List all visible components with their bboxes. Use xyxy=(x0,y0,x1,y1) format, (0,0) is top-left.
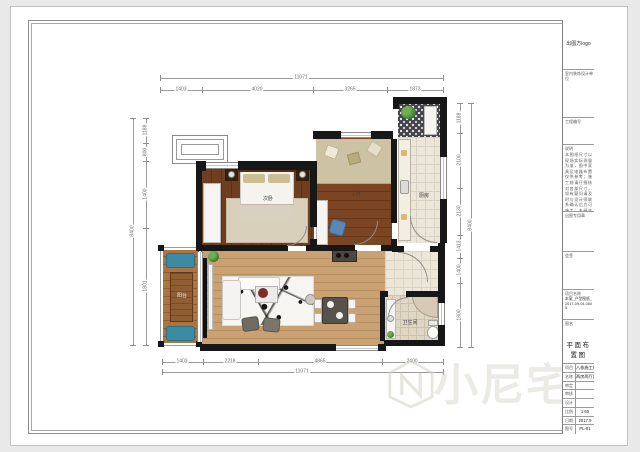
dim-label: 1413 xyxy=(458,239,463,252)
dim-label: 4865 xyxy=(313,360,326,365)
dim-label: 2400 xyxy=(405,360,418,365)
drawing-name-value: 平面布置图 xyxy=(563,339,594,359)
hob-symbol xyxy=(336,253,341,258)
chair-symbol xyxy=(348,313,356,323)
lamp-symbol xyxy=(299,171,306,178)
wall-segment xyxy=(393,97,399,109)
title-block-drawing-name: 图名 平面布置图 xyxy=(563,320,594,364)
wall-segment xyxy=(380,291,388,297)
design-unit-text: 室内装饰设计单位 xyxy=(563,70,594,81)
balcony-door-symbol xyxy=(197,252,203,342)
wardrobe-symbol xyxy=(203,183,221,243)
wall-segment xyxy=(313,131,341,139)
wall-segment xyxy=(430,246,440,252)
project-no-label: 工程编号 xyxy=(563,118,594,124)
armchair-symbol xyxy=(262,317,280,333)
drawing-canvas: 次卧 主卧 厨房 xyxy=(0,0,640,452)
notes-text: 本图纸尺寸以现场实际测量为准，图中家具及电器布置仅供参考；施工前请仔细核对各部尺… xyxy=(563,151,594,212)
dim-label: 11071 xyxy=(294,370,310,375)
washer-symbol xyxy=(424,106,437,135)
table-row: 项目八栋施工图 xyxy=(563,364,594,373)
dim-line xyxy=(162,362,443,363)
wall-segment xyxy=(381,245,392,251)
title-block-notes: 说明 本图纸尺寸以现场实际测量为准，图中家具及电器布置仅供参考；施工前请仔细核对… xyxy=(563,145,594,212)
blanket-symbol xyxy=(240,204,294,222)
wall-segment xyxy=(392,246,404,252)
wall-segment xyxy=(380,295,385,341)
label-bathroom: 卫生间 xyxy=(402,320,417,326)
logo-placeholder: 出图方logo xyxy=(563,40,594,47)
dim-label: 1801 xyxy=(144,279,149,292)
pillow-symbol xyxy=(243,174,265,183)
bay-window xyxy=(172,135,228,164)
sink-symbol xyxy=(400,180,409,194)
wall-segment xyxy=(391,139,397,223)
wall-segment xyxy=(310,161,317,227)
window-symbol xyxy=(438,303,445,325)
table-row: 日期2017.9 xyxy=(563,417,594,426)
sign-label: 会签 xyxy=(563,252,594,258)
window-symbol xyxy=(336,345,380,351)
chair-symbol xyxy=(314,313,322,323)
label-kitchen: 厨房 xyxy=(419,193,429,199)
seal-label: 出图专用章 xyxy=(563,212,594,218)
dim-label: 1403 xyxy=(174,88,187,93)
lounge-chair-symbol xyxy=(166,253,195,268)
wall-segment xyxy=(196,192,202,247)
table-row: 审定 xyxy=(563,382,594,391)
table-row: 名称两房两厅(平面) xyxy=(563,373,594,382)
title-block-table: 项目八栋施工图 名称两房两厅(平面) 审定 审核 设计 比例1:60 日期201… xyxy=(563,364,594,434)
title-block-seal: 出图专用章 xyxy=(563,212,594,252)
bathroom-threshold xyxy=(384,340,442,346)
project-name-value: 本案_户型图纸_2017-09-04-0805 xyxy=(563,296,594,311)
table-row: 图号PL-01 xyxy=(563,425,594,434)
wall-segment xyxy=(393,97,446,104)
dim-label: 1800 xyxy=(458,308,463,321)
title-block-logo: 出图方logo xyxy=(563,20,594,70)
table-row: 设计 xyxy=(563,399,594,408)
window-symbol xyxy=(440,157,447,199)
plant-symbol xyxy=(401,106,416,119)
lamp-symbol xyxy=(228,171,235,178)
dim-label: 800 xyxy=(144,147,149,157)
title-block-project-name: 项目名称 本案_户型图纸_2017-09-04-0805 xyxy=(563,290,594,320)
dim-label: 2100 xyxy=(458,153,463,166)
plate-symbol xyxy=(336,312,343,319)
table-row: 审核 xyxy=(563,390,594,399)
table-row: 比例1:60 xyxy=(563,408,594,417)
title-block-sign: 会签 xyxy=(563,252,594,290)
wall-segment xyxy=(196,245,288,251)
watermark-cube-logo-icon xyxy=(388,359,434,414)
wall-segment xyxy=(378,344,386,351)
dim-label: 4020 xyxy=(250,88,263,93)
label-secondary-bedroom: 次卧 xyxy=(263,196,273,202)
dim-label: 3265 xyxy=(343,88,356,93)
chair-symbol xyxy=(348,299,356,309)
armchair-symbol xyxy=(241,316,260,332)
wall-segment xyxy=(196,161,206,171)
hob-symbol xyxy=(344,253,349,258)
wall-segment xyxy=(371,131,393,139)
dim-label: 1188 xyxy=(144,124,149,137)
wall-segment xyxy=(440,199,447,243)
floor-plan: 次卧 主卧 厨房 xyxy=(0,0,640,452)
chair-symbol xyxy=(314,299,322,309)
title-block-project-no: 工程编号 xyxy=(563,118,594,145)
plant-symbol xyxy=(387,331,394,338)
dim-label: 8400 xyxy=(469,218,474,231)
dim-label: 11071 xyxy=(293,76,309,81)
window-symbol xyxy=(206,162,238,169)
label-balcony: 阳台 xyxy=(177,293,187,299)
cabinet-symbol xyxy=(316,200,328,245)
tray-symbol xyxy=(258,288,268,298)
dining-table-symbol xyxy=(322,297,348,324)
dim-label: 2130 xyxy=(458,204,463,217)
dim-label: 1873 xyxy=(408,88,421,93)
wall-segment xyxy=(313,245,355,251)
title-block-design-unit: 室内装饰设计单位 xyxy=(563,70,594,118)
wall-segment xyxy=(438,325,445,346)
dim-label: 2218 xyxy=(223,360,236,365)
plant-symbol xyxy=(208,251,219,262)
drawing-name-label: 图名 xyxy=(563,320,594,326)
wall-segment xyxy=(200,344,336,351)
label-master-bedroom: 主卧 xyxy=(351,191,361,197)
watermark-text: 小尼宅配 xyxy=(434,356,562,416)
tv-console-symbol xyxy=(208,264,213,330)
dim-label: 8400 xyxy=(131,224,136,237)
counter-item xyxy=(401,214,407,220)
plate-symbol xyxy=(327,301,334,308)
dim-label: 1403 xyxy=(175,360,188,365)
counter-item xyxy=(401,150,407,156)
wall-segment xyxy=(440,97,447,157)
lounge-chair-symbol xyxy=(166,326,195,341)
title-block: 出图方logo 室内装饰设计单位 工程编号 说明 本图纸尺寸以现场实际测量为准，… xyxy=(562,20,594,434)
dim-label: 1188 xyxy=(458,112,463,125)
window-symbol xyxy=(341,132,371,138)
chaise-symbol xyxy=(222,280,241,320)
wall-segment xyxy=(238,161,316,170)
wall-segment xyxy=(406,291,442,297)
dim-label: 1400 xyxy=(458,263,463,276)
dim-label: 1400 xyxy=(144,187,149,200)
wall-corner xyxy=(158,341,164,347)
pillow-symbol xyxy=(268,174,290,183)
wall-corner xyxy=(158,245,164,251)
